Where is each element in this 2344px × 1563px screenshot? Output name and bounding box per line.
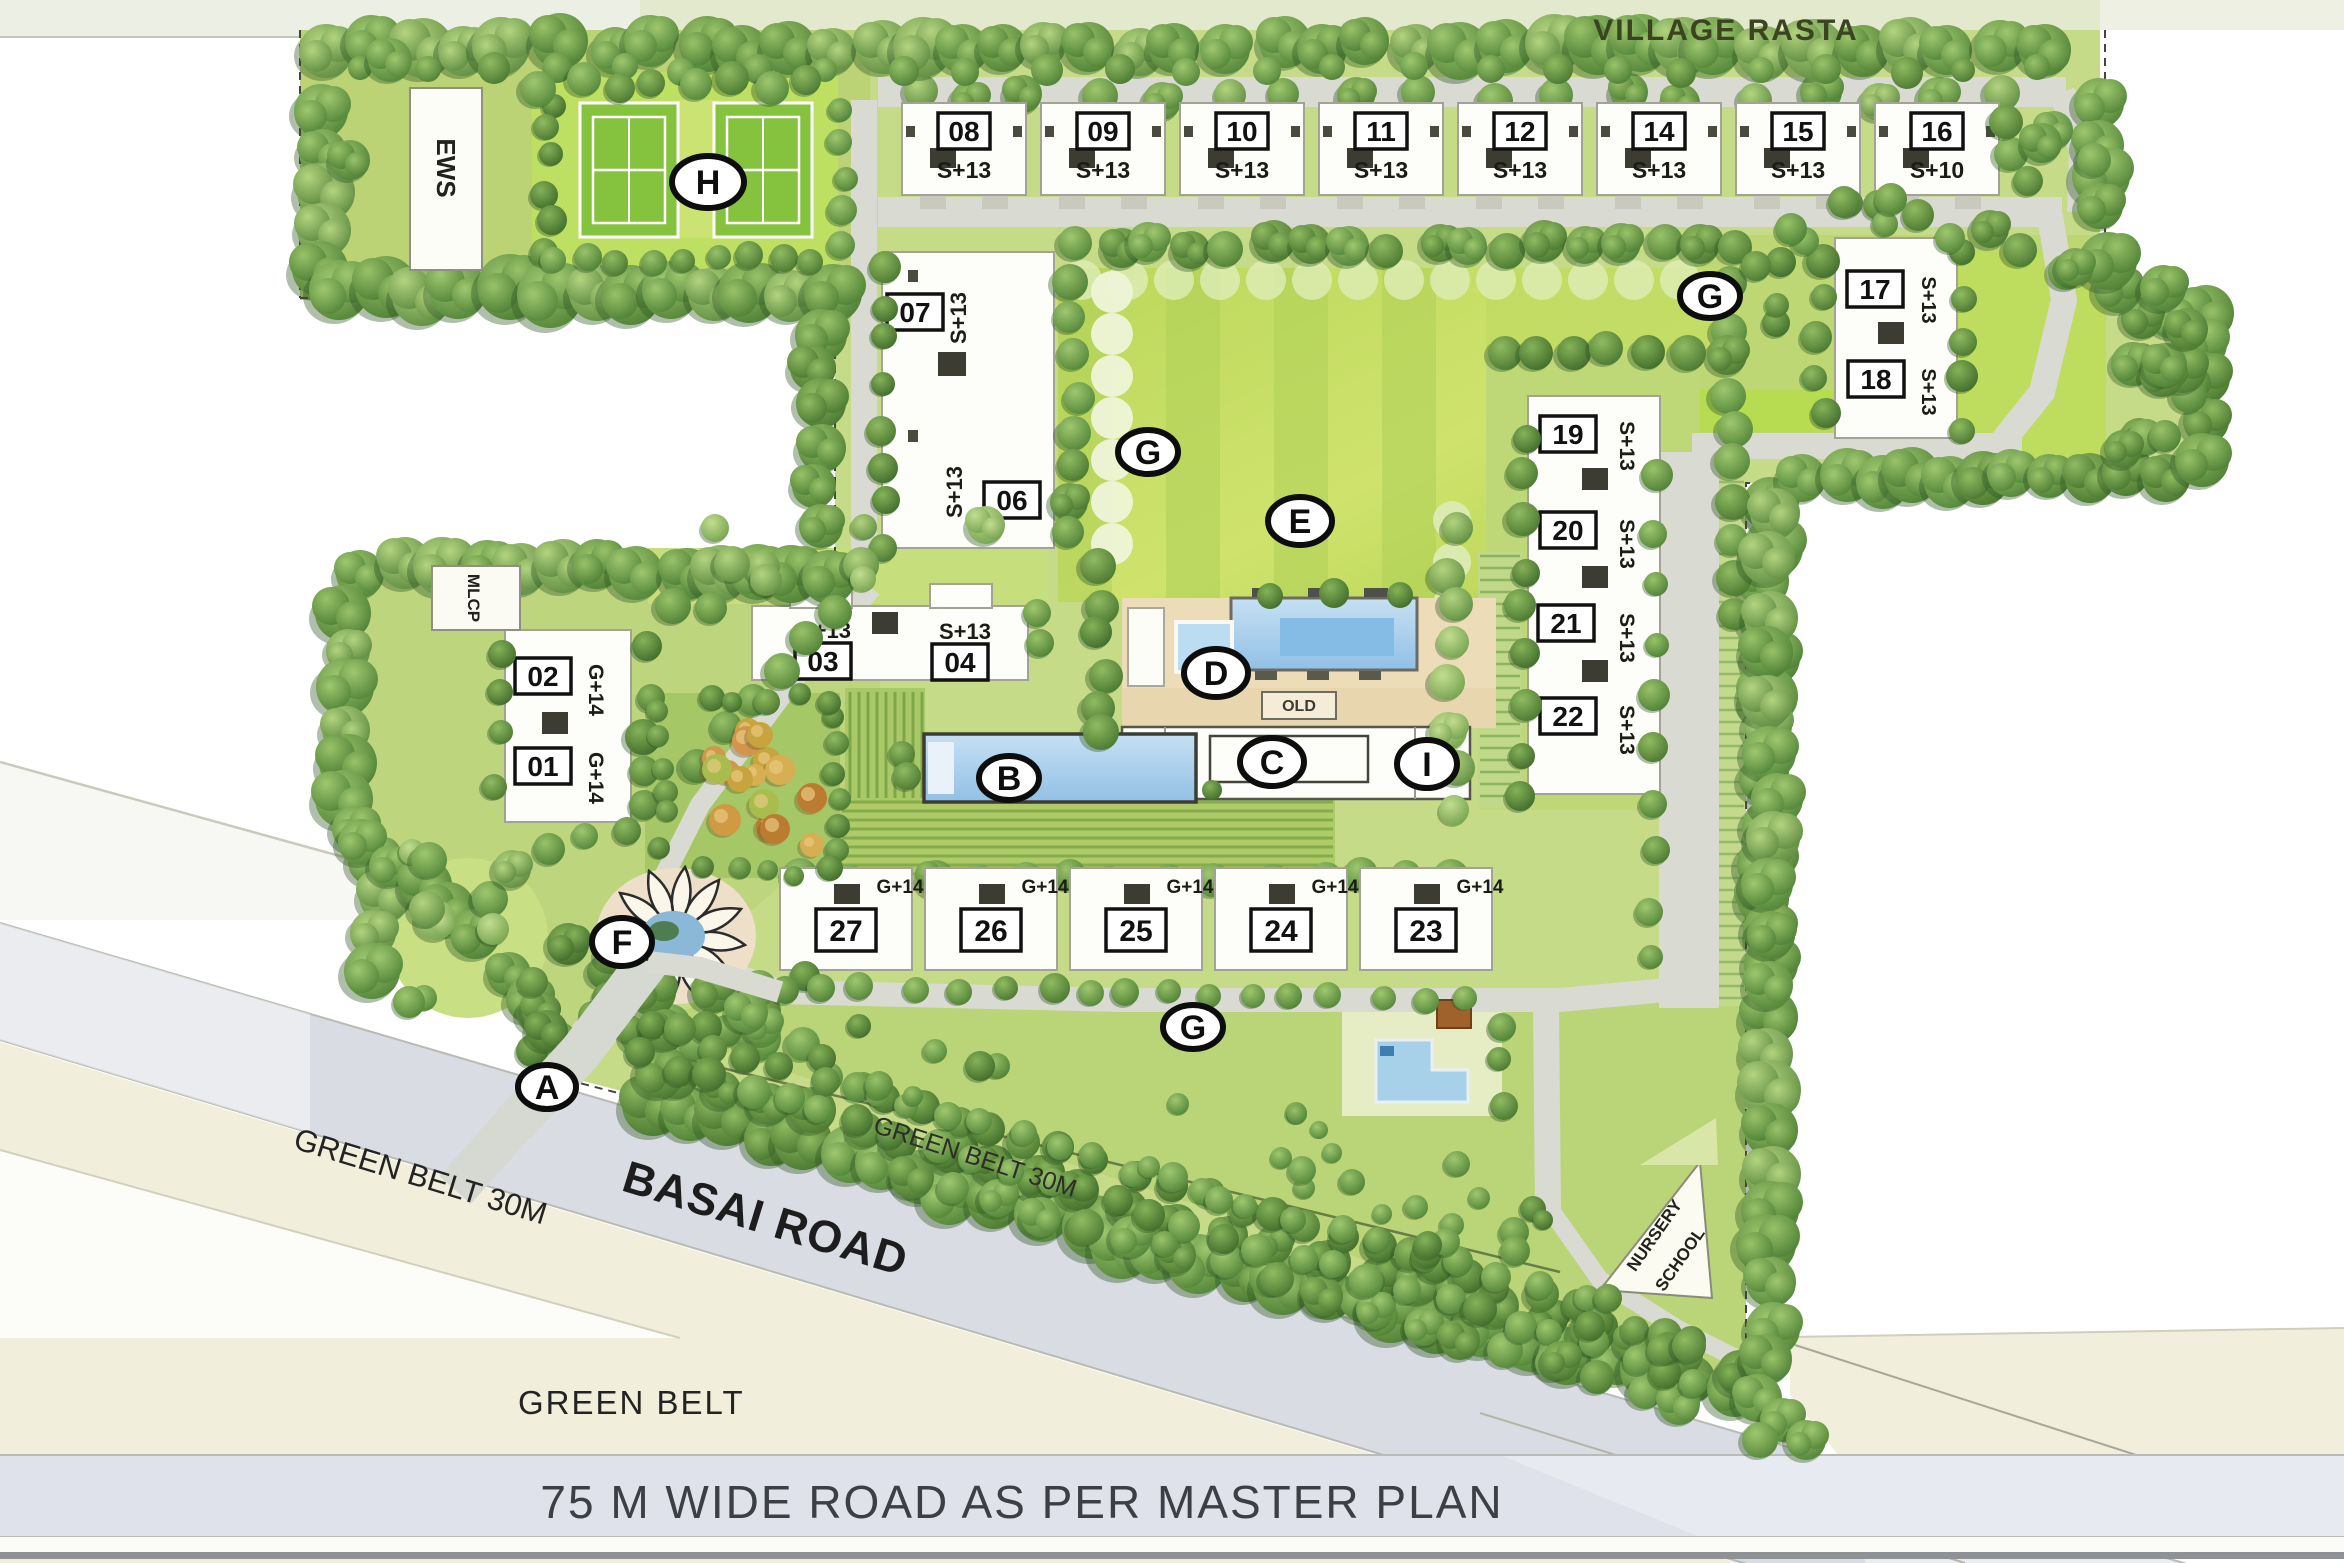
svg-text:G: G bbox=[1697, 278, 1723, 316]
svg-text:S+13: S+13 bbox=[1632, 157, 1686, 183]
svg-text:G+14: G+14 bbox=[1456, 877, 1503, 898]
svg-text:S+13: S+13 bbox=[1917, 368, 1939, 415]
svg-text:20: 20 bbox=[1552, 515, 1583, 546]
svg-text:OLD: OLD bbox=[1282, 698, 1316, 715]
svg-text:06: 06 bbox=[996, 485, 1027, 516]
svg-text:11: 11 bbox=[1366, 116, 1396, 147]
svg-text:G: G bbox=[1180, 1009, 1206, 1047]
svg-text:S+13: S+13 bbox=[946, 292, 971, 344]
svg-text:18: 18 bbox=[1860, 364, 1891, 395]
svg-text:23: 23 bbox=[1409, 915, 1442, 948]
svg-text:S+13: S+13 bbox=[939, 619, 991, 644]
svg-text:26: 26 bbox=[974, 915, 1007, 948]
svg-text:27: 27 bbox=[829, 915, 862, 948]
svg-text:S+13: S+13 bbox=[942, 466, 967, 518]
svg-text:G: G bbox=[1135, 434, 1161, 472]
svg-text:04: 04 bbox=[944, 647, 976, 678]
svg-text:S+13: S+13 bbox=[1917, 276, 1939, 323]
svg-text:S+13: S+13 bbox=[1615, 421, 1638, 471]
svg-text:G+14: G+14 bbox=[1021, 877, 1068, 898]
svg-text:B: B bbox=[997, 760, 1022, 798]
svg-text:24: 24 bbox=[1264, 915, 1298, 948]
svg-text:GREEN BELT: GREEN BELT bbox=[518, 1384, 745, 1421]
svg-text:25: 25 bbox=[1119, 915, 1152, 948]
svg-text:S+13: S+13 bbox=[1354, 157, 1408, 183]
svg-text:S+13: S+13 bbox=[1076, 157, 1130, 183]
svg-text:02: 02 bbox=[527, 661, 558, 692]
svg-text:S+13: S+13 bbox=[1493, 157, 1547, 183]
svg-text:09: 09 bbox=[1087, 116, 1118, 147]
svg-text:01: 01 bbox=[527, 751, 558, 782]
svg-text:S+13: S+13 bbox=[1771, 157, 1825, 183]
svg-text:S+13: S+13 bbox=[1215, 157, 1269, 183]
svg-text:14: 14 bbox=[1643, 116, 1675, 147]
svg-text:S+13: S+13 bbox=[937, 157, 991, 183]
svg-text:S+13: S+13 bbox=[1615, 613, 1638, 663]
svg-text:G+14: G+14 bbox=[584, 664, 607, 716]
svg-text:EWS: EWS bbox=[431, 138, 461, 197]
svg-text:16: 16 bbox=[1921, 116, 1952, 147]
svg-text:10: 10 bbox=[1226, 116, 1257, 147]
svg-text:S+13: S+13 bbox=[1615, 705, 1638, 755]
svg-text:C: C bbox=[1260, 744, 1285, 782]
svg-text:MLCP: MLCP bbox=[464, 574, 483, 622]
svg-text:A: A bbox=[535, 1069, 560, 1107]
svg-text:22: 22 bbox=[1552, 701, 1583, 732]
svg-text:D: D bbox=[1204, 655, 1229, 693]
svg-text:H: H bbox=[696, 164, 721, 202]
svg-text:G+14: G+14 bbox=[1166, 877, 1213, 898]
svg-text:08: 08 bbox=[948, 116, 979, 147]
svg-text:19: 19 bbox=[1552, 419, 1583, 450]
svg-text:G+14: G+14 bbox=[1311, 877, 1358, 898]
svg-text:75 M WIDE ROAD AS PER MASTER P: 75 M WIDE ROAD AS PER MASTER PLAN bbox=[540, 1476, 1503, 1528]
svg-text:I: I bbox=[1422, 746, 1431, 784]
svg-text:VILLAGE RASTA: VILLAGE RASTA bbox=[1593, 14, 1858, 47]
svg-text:G+14: G+14 bbox=[876, 877, 923, 898]
svg-text:S+13: S+13 bbox=[1615, 519, 1638, 569]
svg-text:21: 21 bbox=[1550, 608, 1581, 639]
svg-text:G+14: G+14 bbox=[584, 752, 607, 804]
svg-text:E: E bbox=[1289, 503, 1312, 541]
svg-text:S+10: S+10 bbox=[1910, 157, 1964, 183]
svg-text:07: 07 bbox=[899, 297, 930, 328]
svg-text:17: 17 bbox=[1859, 274, 1890, 305]
svg-text:F: F bbox=[612, 924, 633, 962]
svg-text:12: 12 bbox=[1504, 116, 1535, 147]
svg-text:15: 15 bbox=[1782, 116, 1813, 147]
